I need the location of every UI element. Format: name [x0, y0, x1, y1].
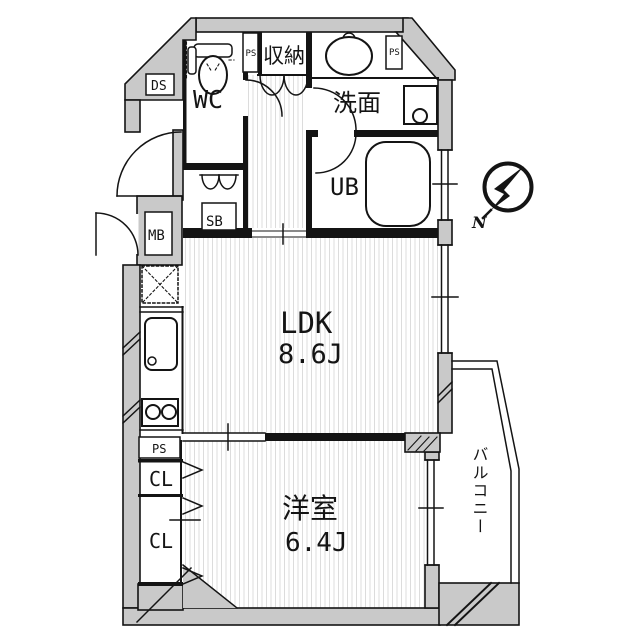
wc-left-wall-strip	[173, 130, 183, 200]
ub-window	[433, 150, 457, 220]
top-wall	[196, 18, 408, 32]
western-right-wall-top	[425, 452, 439, 460]
meter-box-label: MB	[148, 228, 165, 244]
balcony-bottom-wall	[439, 583, 519, 625]
wc-label: WC	[193, 85, 223, 114]
ldk-label: LDK	[280, 306, 333, 340]
wc-right-wall-lower	[243, 116, 248, 170]
top-right-chamfer-wall	[396, 18, 455, 80]
ldk-western-partition	[265, 433, 405, 441]
ub-bottom-wall	[306, 228, 438, 238]
pipe-space-right-label: PS	[389, 48, 400, 58]
washroom-left-wall-lower	[306, 130, 312, 238]
burner-icon	[146, 405, 160, 419]
entry-hall-wall	[243, 170, 248, 228]
shoe-box-folding-door	[219, 175, 236, 189]
right-wall-ub	[438, 80, 452, 150]
washroom-label: 洗面	[333, 89, 381, 117]
pipe-space-kitchen-label: PS	[152, 442, 166, 456]
left-wall-upper	[125, 100, 140, 132]
shoe-box-folding-door	[202, 175, 219, 189]
wc-bottom-wall	[183, 163, 248, 170]
ub-top-wall	[354, 130, 438, 137]
western-room-label: 洋室	[282, 492, 338, 525]
shoe-box-label: SB	[206, 214, 223, 230]
unit-bath-label: UB	[330, 173, 359, 201]
meter-box-door-arc	[96, 213, 138, 255]
burner-icon	[162, 405, 176, 419]
right-wall-mid	[438, 220, 452, 245]
pipe-space-top-label: PS	[246, 49, 257, 59]
closet-upper-label: CL	[149, 467, 173, 491]
balcony-label: バルコニー	[470, 446, 489, 536]
ldk-size-label: 8.6J	[278, 339, 343, 370]
entrance-door-arc	[117, 132, 181, 196]
washing-machine-icon	[404, 86, 437, 124]
ub-door-arc	[316, 133, 356, 173]
compass-north-label: N	[471, 213, 488, 232]
closet-lower-label: CL	[149, 529, 173, 553]
floor-plan-canvas: WC 収納 洗面 UB LDK 8.6J 洋室 6.4J バルコニー CL CL…	[0, 0, 640, 640]
partition-end-column	[405, 433, 440, 452]
compass-needle	[491, 166, 524, 210]
compass-circle	[485, 164, 532, 211]
compass-icon	[483, 164, 532, 219]
bottom-left-corner-wall	[138, 584, 183, 610]
storage-label: 収納	[263, 44, 305, 68]
kitchen	[140, 266, 183, 433]
bathtub-icon	[366, 142, 430, 226]
washroom-left-wall-upper	[306, 32, 312, 88]
left-wall-main	[123, 265, 140, 608]
western-right-wall-bottom	[425, 565, 439, 608]
floor-plan-page: WC 収納 洗面 UB LDK 8.6J 洋室 6.4J バルコニー CL CL…	[0, 0, 640, 640]
ub-top-wall-left	[312, 130, 318, 137]
western-room-size-label: 6.4J	[285, 528, 348, 558]
duct-space-label: DS	[151, 79, 167, 94]
faucet-icon	[148, 357, 156, 365]
